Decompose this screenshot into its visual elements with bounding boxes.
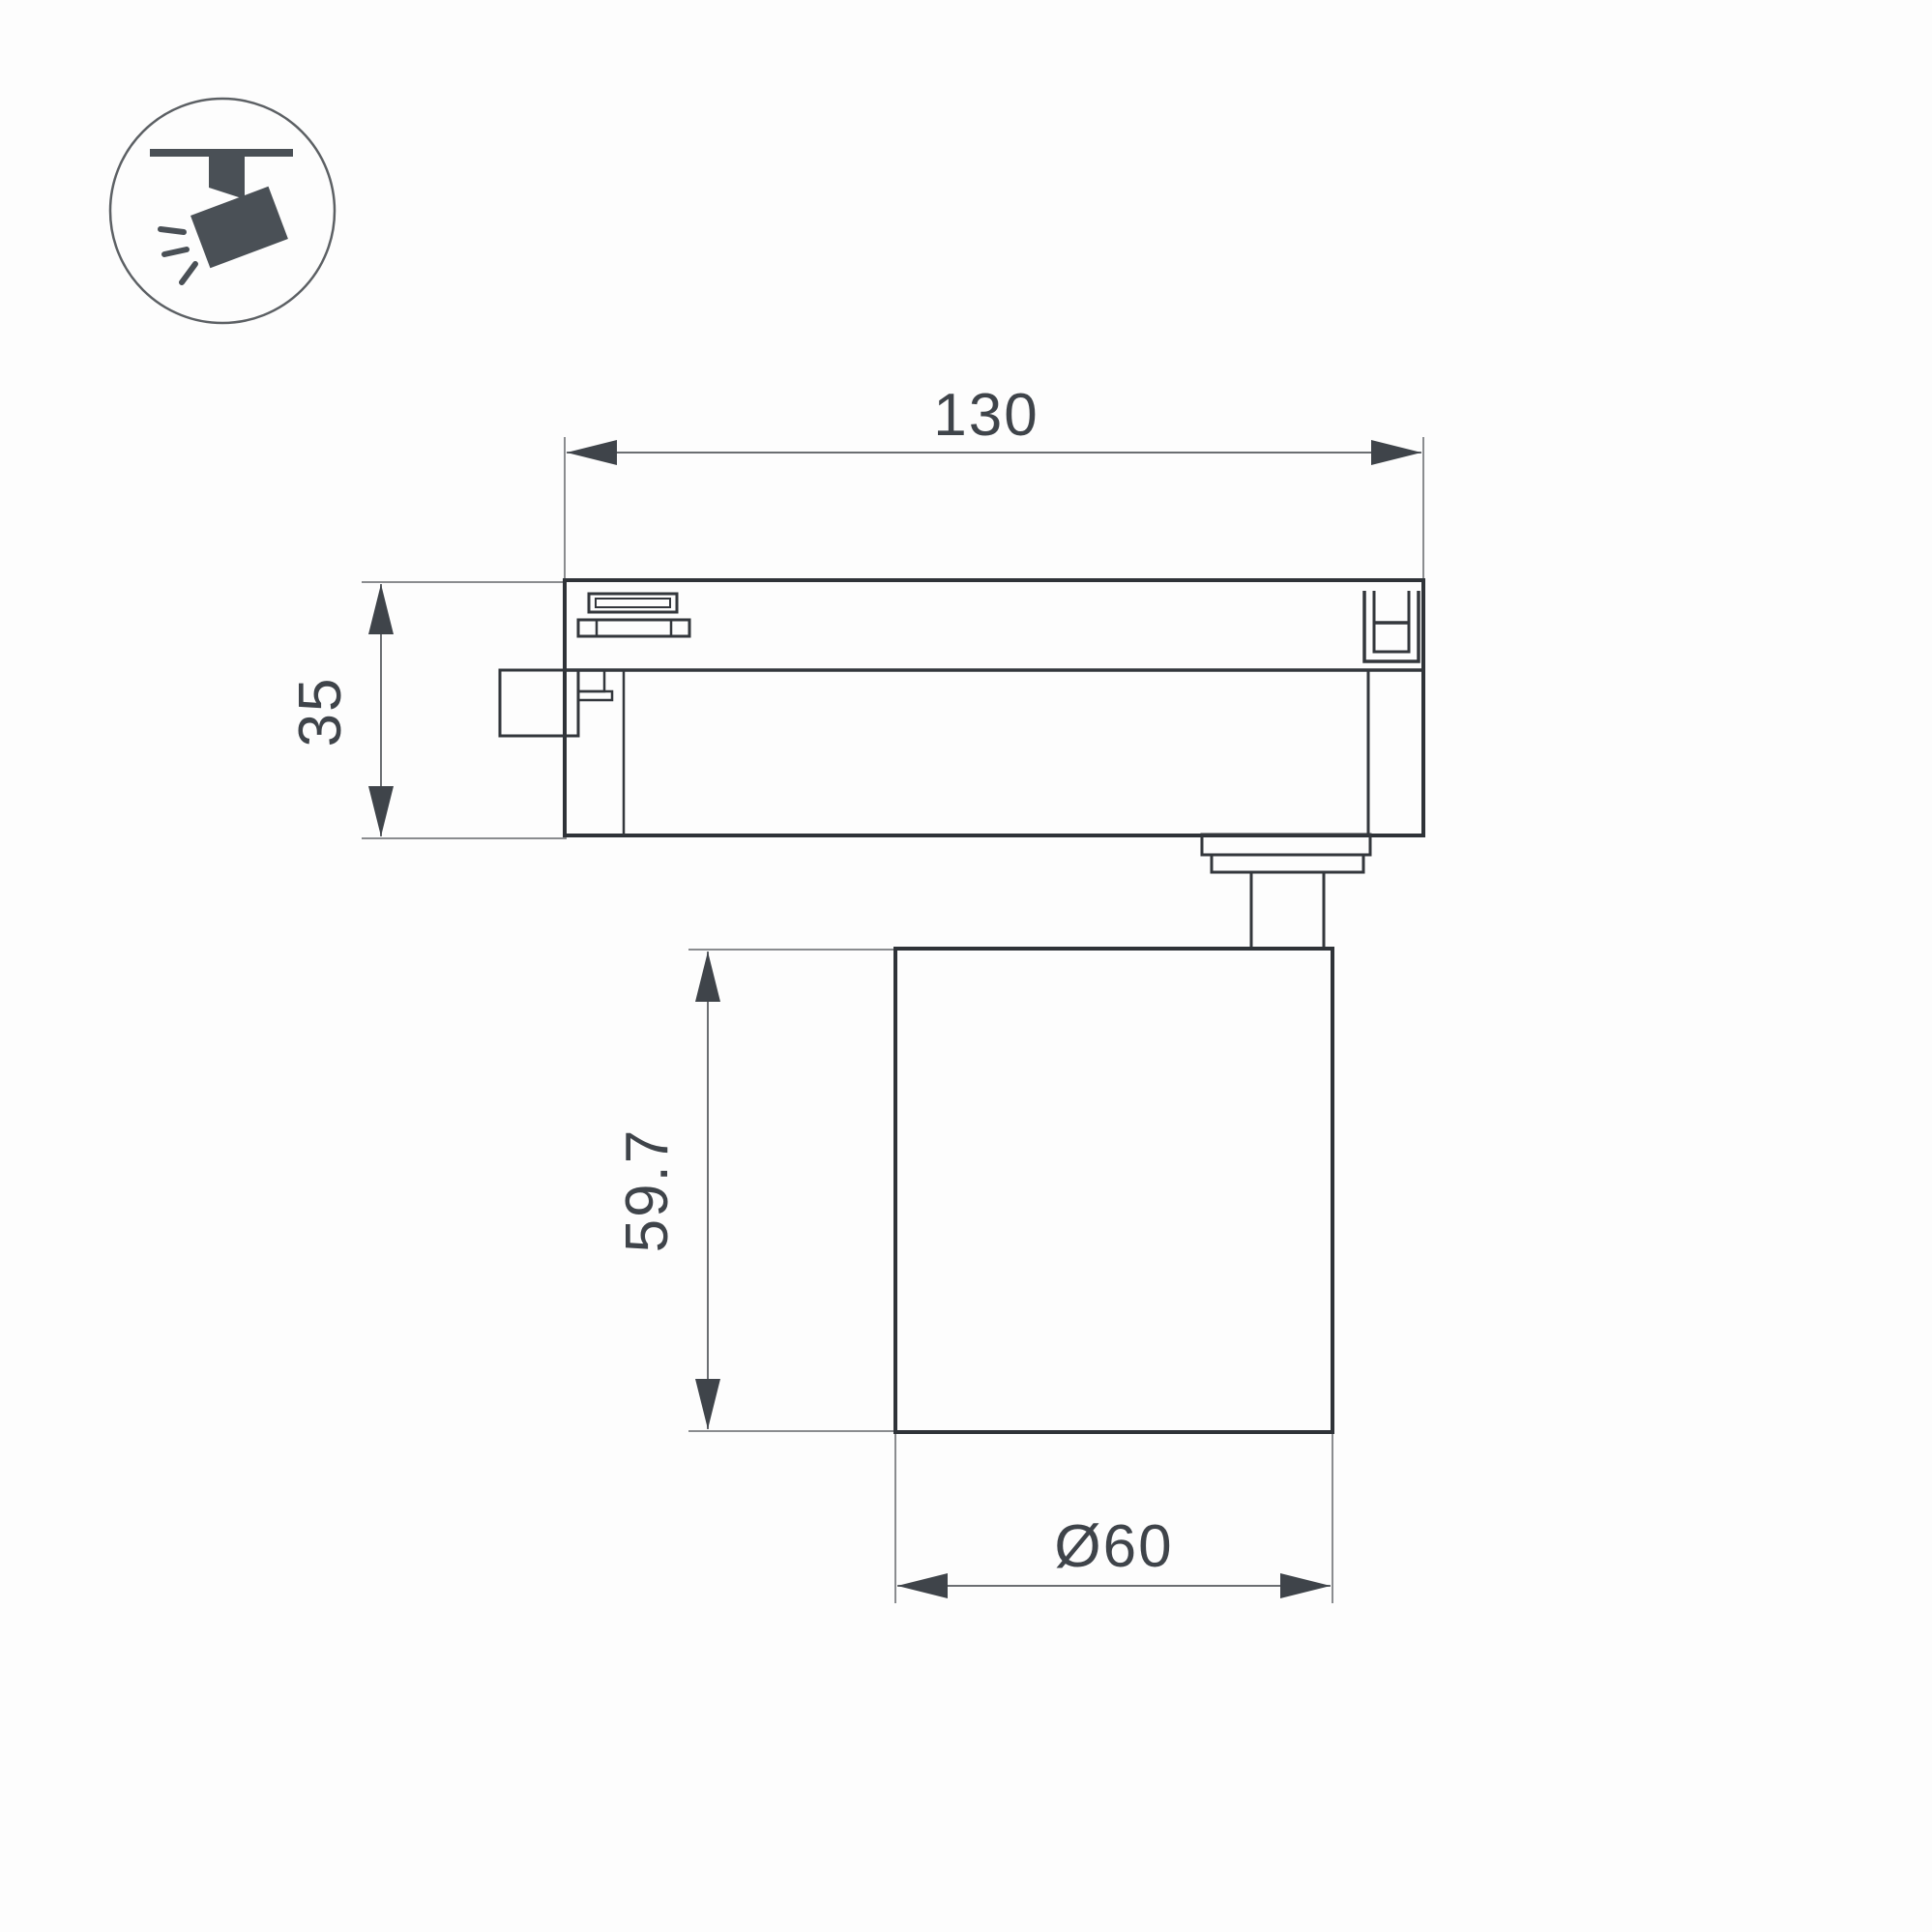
dimension-body-diameter: Ø60 (895, 1434, 1332, 1603)
arrowhead-up (368, 584, 394, 634)
dimension-body-height: 59.7 (614, 950, 895, 1431)
joint-neck (1251, 872, 1324, 949)
dimension-label-track-height: 35 (287, 677, 354, 747)
lever-tab (578, 691, 612, 700)
swivel-joint (1202, 834, 1370, 949)
arrowhead-right (1280, 1573, 1331, 1598)
contact-upper (589, 594, 677, 612)
adapter-clip (1364, 591, 1419, 661)
arrowhead-down (695, 1379, 720, 1429)
arrowhead-up (695, 951, 720, 1002)
drawing-canvas: 130 35 59.7 Ø60 (0, 0, 1932, 1932)
arrowhead-left (897, 1573, 948, 1598)
dimension-label-body-height: 59.7 (614, 1128, 681, 1253)
arrowhead-right (1371, 440, 1421, 465)
arrowhead-left (567, 440, 617, 465)
track-light-icon (110, 99, 335, 323)
joint-flange-lower (1212, 855, 1363, 872)
joint-flange-upper (1202, 834, 1370, 855)
arrowhead-down (368, 786, 394, 836)
track-adapter (500, 580, 1423, 835)
icon-light-ray (161, 229, 184, 232)
contact-lower (578, 620, 689, 636)
dimension-track-width: 130 (565, 382, 1423, 580)
locking-lever (500, 670, 612, 736)
technical-drawing: 130 35 59.7 Ø60 (0, 0, 1932, 1932)
dimension-track-height: 35 (287, 582, 567, 838)
adapter-outline (565, 580, 1423, 835)
lamp-body (895, 949, 1332, 1432)
dimension-label-track-width: 130 (933, 382, 1039, 449)
icon-ceiling-bar (150, 149, 293, 157)
lever-bracket (578, 670, 604, 691)
dimension-label-body-diameter: Ø60 (1054, 1513, 1173, 1580)
